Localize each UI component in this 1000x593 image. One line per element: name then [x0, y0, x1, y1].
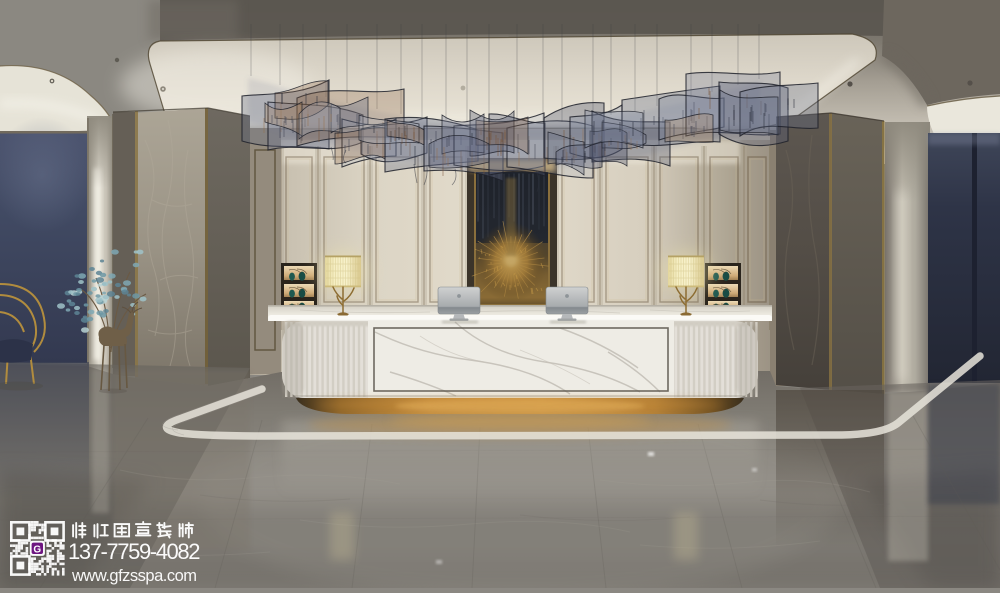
- svg-text:G: G: [33, 545, 41, 556]
- svg-text:137-7759-4082: 137-7759-4082: [68, 539, 200, 564]
- svg-text:www.gfzsspa.com: www.gfzsspa.com: [71, 567, 197, 585]
